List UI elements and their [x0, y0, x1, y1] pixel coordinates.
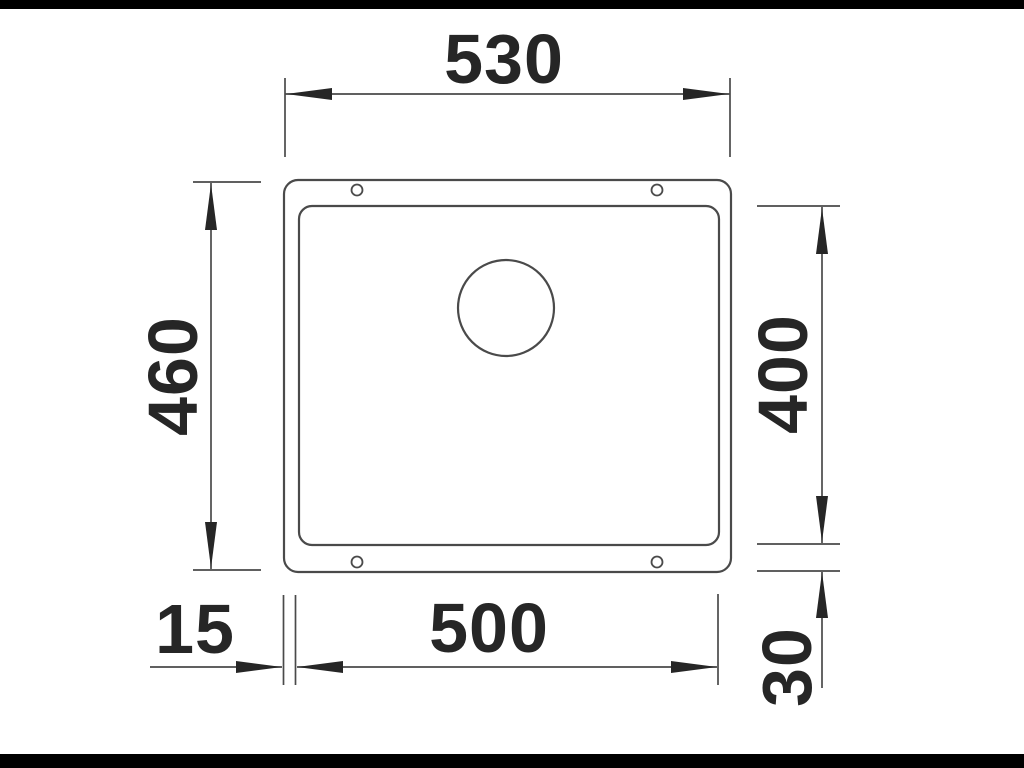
mounting-hole-bottom-right — [652, 557, 663, 568]
dimension-label-overall-width: 530 — [444, 20, 564, 98]
arrowhead-right — [671, 661, 717, 673]
mounting-hole-bottom-left — [352, 557, 363, 568]
sink-outer-rim — [284, 180, 731, 572]
drawing-page: 530 460 400 30 — [0, 0, 1024, 768]
arrowhead-up — [816, 572, 828, 618]
sink-outline-group — [284, 180, 731, 572]
arrowhead-left — [286, 88, 332, 100]
drain-hole — [458, 260, 554, 356]
mounting-hole-top-right — [652, 185, 663, 196]
arrowhead-down — [205, 522, 217, 568]
dimension-bowl-depth: 400 — [744, 206, 840, 544]
arrowhead-left — [297, 661, 343, 673]
arrowhead-right — [683, 88, 729, 100]
letterbox-top-bar — [0, 0, 1024, 9]
arrowhead-up — [816, 208, 828, 254]
dimension-label-overall-depth: 460 — [134, 316, 212, 436]
dimension-rim-offset-bottom: 30 — [748, 571, 840, 707]
dimension-rim-offset-left: 15 — [150, 590, 282, 673]
sink-bowl-edge — [299, 206, 719, 545]
dimension-bowl-width: 500 — [284, 589, 719, 685]
mounting-hole-top-left — [352, 185, 363, 196]
dimension-label-bowl-depth: 400 — [744, 314, 822, 434]
dimension-label-rim-offset-left: 15 — [155, 590, 235, 668]
arrowhead-right — [236, 661, 282, 673]
arrowhead-up — [205, 184, 217, 230]
letterbox-bottom-bar — [0, 754, 1024, 768]
dimension-label-rim-offset-bottom: 30 — [748, 627, 826, 707]
sink-dimension-drawing: 530 460 400 30 — [0, 0, 1024, 768]
arrowhead-down — [816, 496, 828, 542]
dimension-overall-width: 530 — [285, 20, 730, 157]
dimension-overall-depth: 460 — [134, 182, 261, 570]
dimension-label-bowl-width: 500 — [429, 589, 549, 667]
